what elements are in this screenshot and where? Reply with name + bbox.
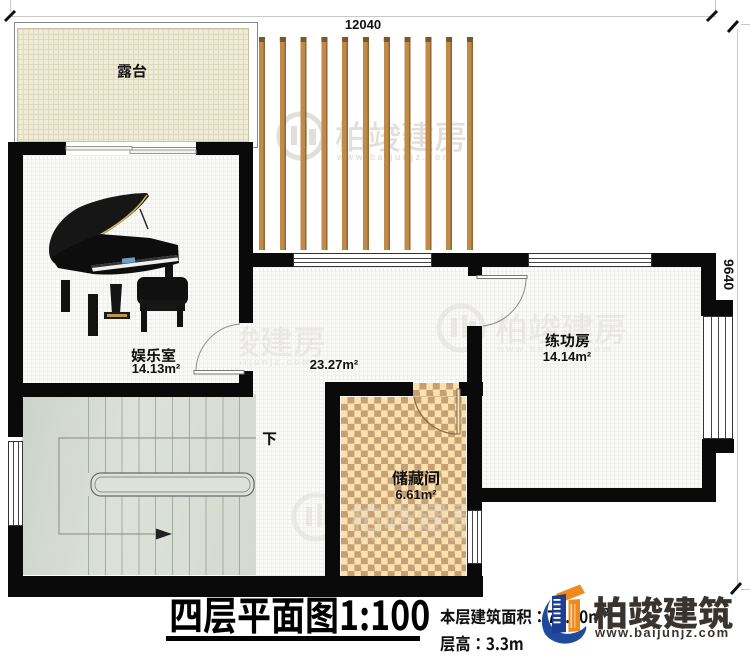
svg-text:www.baijunjz.com: www.baijunjz.com <box>594 625 730 640</box>
